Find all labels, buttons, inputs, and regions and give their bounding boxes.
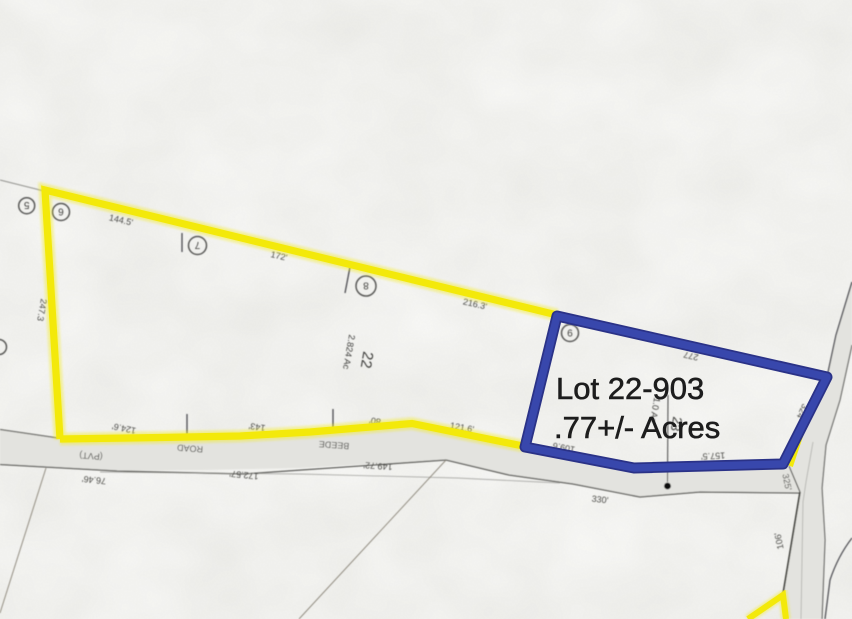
svg-text:149.72': 149.72' [363, 460, 393, 472]
svg-text:ROAD: ROAD [176, 443, 203, 455]
svg-text:5: 5 [23, 199, 29, 210]
svg-text:6: 6 [58, 206, 64, 217]
svg-text:(PVT): (PVT) [79, 450, 103, 462]
svg-text:.77+/- Acres: .77+/- Acres [554, 410, 720, 445]
svg-text:330': 330' [591, 494, 609, 506]
svg-text:BEEDE: BEEDE [318, 439, 349, 451]
svg-text:157.5': 157.5' [700, 450, 725, 461]
svg-text:22: 22 [357, 350, 377, 369]
svg-text:9: 9 [567, 327, 573, 338]
svg-text:7: 7 [194, 239, 200, 250]
svg-text:8: 8 [363, 280, 369, 291]
svg-text:Lot 22-903: Lot 22-903 [556, 371, 704, 406]
